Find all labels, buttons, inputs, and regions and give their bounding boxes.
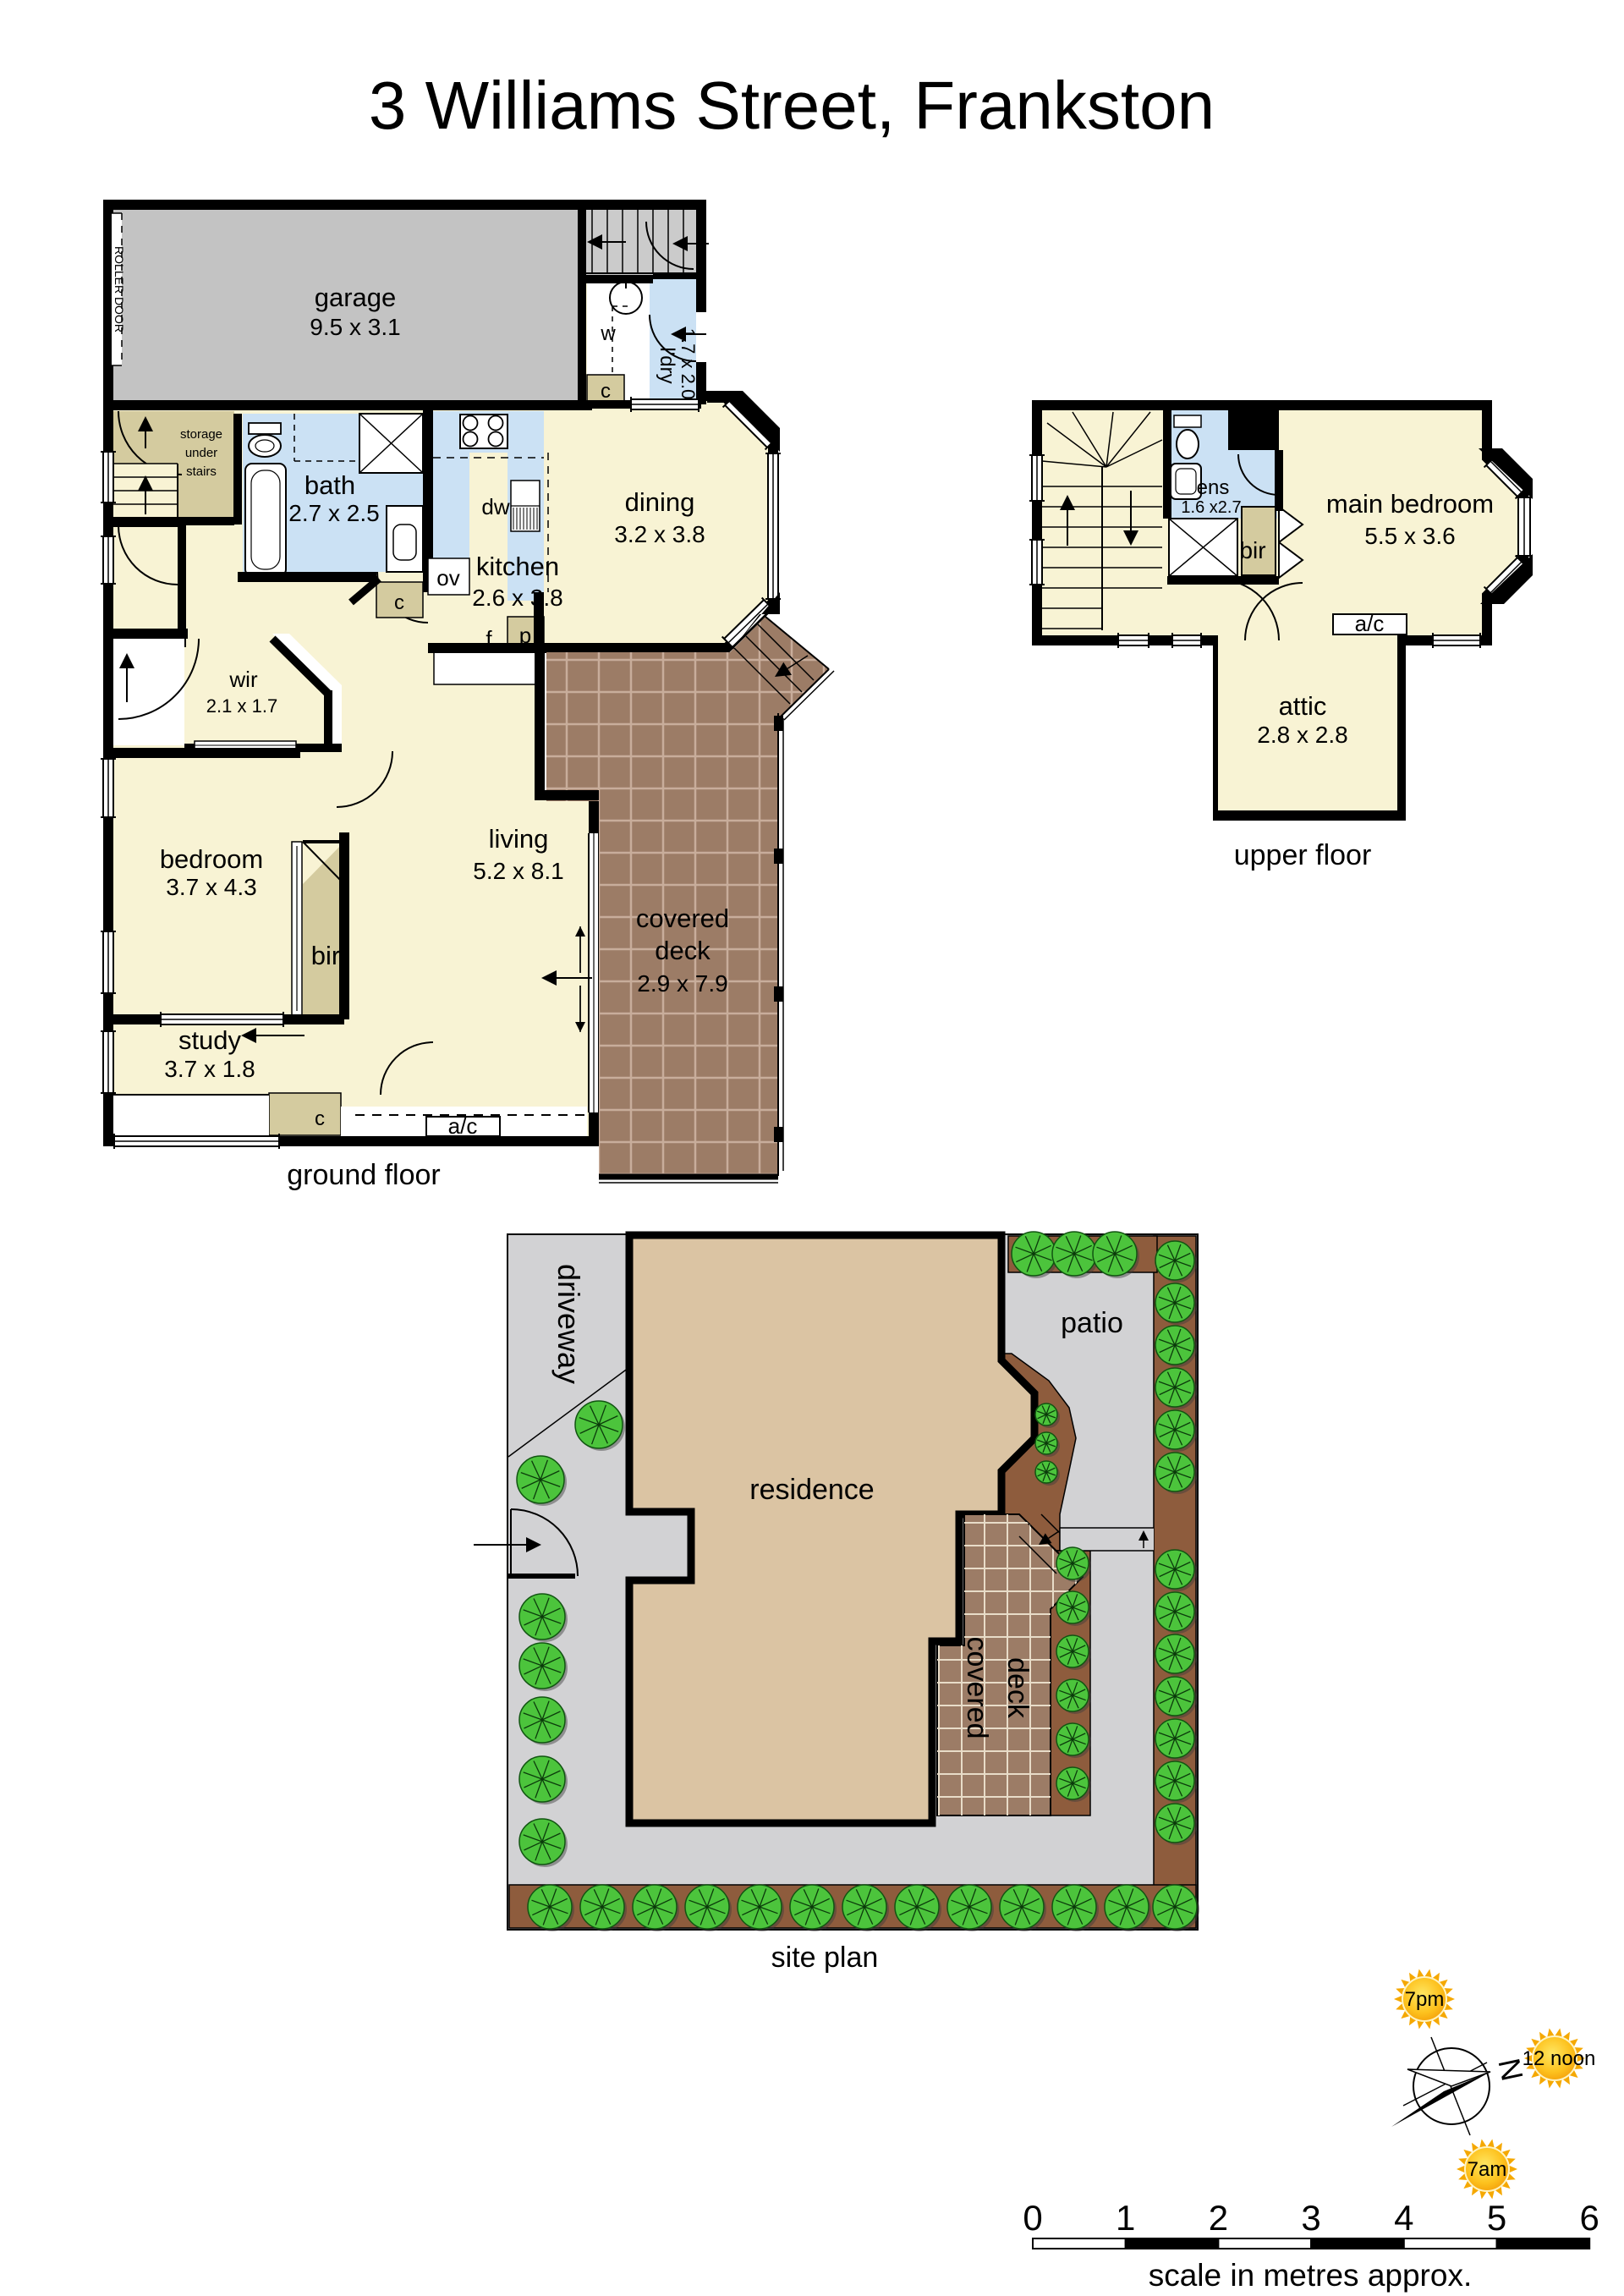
svg-text:2.1 x 1.7: 2.1 x 1.7 [206,695,277,717]
svg-text:9.5 x 3.1: 9.5 x 3.1 [310,314,400,340]
svg-text:bir: bir [311,941,340,970]
svg-text:kitchen: kitchen [476,552,559,581]
svg-text:3.2 x 3.8: 3.2 x 3.8 [614,521,705,547]
svg-text:storage: storage [180,427,222,442]
svg-text:study: study [178,1025,242,1055]
svg-text:deck: deck [1001,1657,1034,1719]
svg-text:6: 6 [1580,2198,1599,2238]
svg-text:2.9 x 7.9: 2.9 x 7.9 [637,970,727,997]
svg-text:driveway: driveway [551,1264,586,1384]
svg-text:2.8 x 2.8: 2.8 x 2.8 [1257,722,1347,748]
svg-text:covered: covered [961,1637,993,1739]
svg-text:bir: bir [1239,537,1265,563]
svg-text:dw: dw [481,494,509,519]
svg-text:12 noon: 12 noon [1522,2047,1596,2070]
svg-text:living: living [489,824,549,854]
svg-text:1: 1 [1116,2198,1135,2238]
svg-text:covered: covered [636,904,729,933]
svg-text:attic: attic [1279,691,1327,721]
svg-text:stairs: stairs [186,464,217,479]
svg-text:residence: residence [749,1474,874,1506]
svg-text:c: c [315,1107,325,1130]
svg-text:1.6 x2.7: 1.6 x2.7 [1181,498,1241,517]
svg-text:garage: garage [315,283,397,312]
svg-text:dining: dining [625,487,695,517]
svg-text:3 Williams Street, Frankston: 3 Williams Street, Frankston [369,68,1215,143]
svg-text:wir: wir [228,667,258,692]
svg-text:a/c: a/c [1355,611,1385,636]
svg-text:3: 3 [1301,2198,1320,2238]
svg-text:ov: ov [436,565,459,590]
svg-text:2: 2 [1209,2198,1228,2238]
svg-text:site plan: site plan [771,1942,879,1974]
svg-text:2.7 x 2.5: 2.7 x 2.5 [288,500,379,526]
svg-text:main bedroom: main bedroom [1326,489,1494,519]
svg-text:bedroom: bedroom [160,844,263,874]
svg-text:upper floor: upper floor [1234,839,1372,871]
svg-text:under: under [185,446,217,460]
svg-text:3.7 x 1.8: 3.7 x 1.8 [164,1056,255,1082]
svg-text:l'dry: l'dry [656,347,678,383]
svg-text:5: 5 [1487,2198,1506,2238]
svg-text:scale in metres approx.: scale in metres approx. [1149,2258,1473,2293]
svg-text:ROLLER DOOR: ROLLER DOOR [112,246,126,332]
svg-text:4: 4 [1394,2198,1413,2238]
svg-text:0: 0 [1023,2198,1042,2238]
svg-text:bath: bath [304,470,355,500]
svg-text:ens: ens [1197,476,1230,499]
svg-text:5.5 x 3.6: 5.5 x 3.6 [1364,523,1455,549]
svg-text:w: w [600,322,616,345]
svg-text:ground floor: ground floor [287,1159,440,1191]
svg-text:c: c [394,591,404,614]
svg-text:5.2 x 8.1: 5.2 x 8.1 [473,858,563,884]
svg-text:c: c [601,380,611,403]
svg-text:deck: deck [655,936,710,965]
svg-text:7pm: 7pm [1405,1988,1445,2011]
svg-text:a/c: a/c [448,1113,478,1139]
svg-text:patio: patio [1061,1307,1123,1339]
svg-text:7am: 7am [1468,2158,1507,2181]
svg-text:3.7 x 4.3: 3.7 x 4.3 [166,874,256,900]
svg-text:2.6 x 3.8: 2.6 x 3.8 [472,585,562,611]
